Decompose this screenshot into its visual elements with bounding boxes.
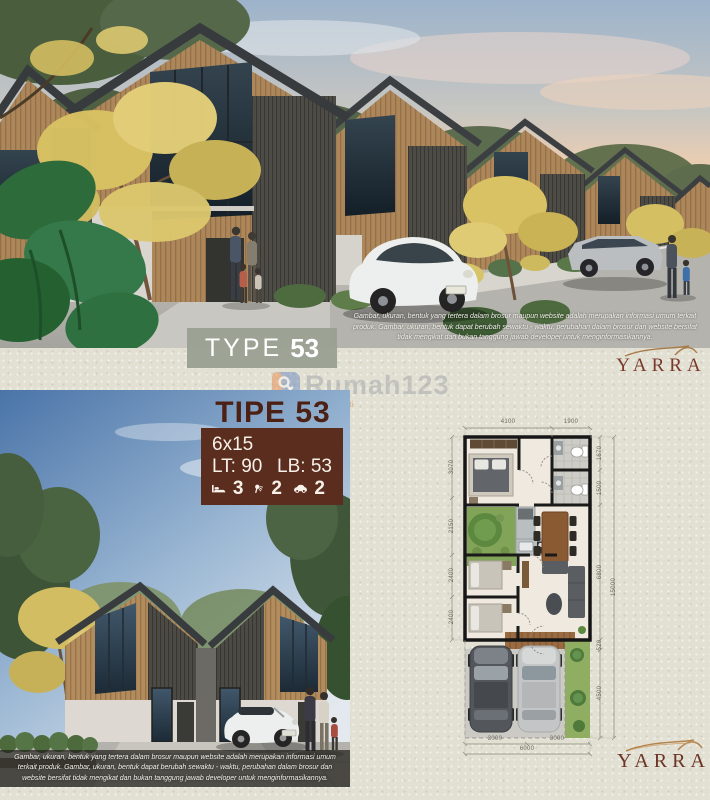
type-badge-number: 53 (290, 333, 319, 364)
bathroom-count: 2 (271, 479, 282, 498)
lt-label: LT: (212, 457, 236, 476)
tipe-53-title: TIPE 53 (198, 396, 348, 430)
dim-right-5: 4500 (597, 676, 603, 710)
bottom-disclaimer-text: Gambar, ukuran, bentuk yang tertera dala… (8, 753, 342, 785)
sedan-car (563, 236, 667, 291)
spec-area-row: LT: 90 LB: 53 (212, 457, 332, 476)
tipe-title-prefix: TIPE (215, 396, 286, 429)
bottom-disclaimer-bar: Gambar, ukuran, bentuk yang tertera dala… (0, 750, 350, 787)
lb-label: LB: (277, 457, 306, 476)
type-53-badge: TYPE 53 (187, 328, 337, 368)
lb-value: 53 (311, 457, 332, 476)
dim-right-1: 1670 (597, 436, 603, 470)
spec-size-row: 6x15 (212, 435, 332, 454)
tipe-title-number: 53 (295, 396, 330, 429)
carport-count: 2 (314, 479, 325, 498)
car-silver (516, 646, 562, 732)
yarra-wordmark: YARRA (617, 750, 710, 773)
bedroom-count: 3 (233, 479, 244, 498)
top-hero-render (0, 0, 710, 348)
dim-bottom-1: 3000 (478, 736, 512, 742)
dim-right-3: 6800 (597, 555, 603, 589)
car-dark (468, 646, 514, 732)
spec-box: 6x15 LT: 90 LB: 53 3 2 (201, 428, 343, 505)
yarra-logo-bottom: YARRA (616, 737, 710, 773)
brochure-page: Gambar, ukuran, bentuk yang tertera dala… (0, 0, 710, 800)
house-gap-shadow (196, 648, 218, 742)
dim-left-4: 2400 (449, 600, 455, 634)
type-badge-prefix: TYPE (205, 334, 282, 363)
dim-right-total: 15000 (611, 570, 617, 604)
spec-amenities-row: 3 2 2 (212, 479, 332, 498)
yarra-wordmark: YARRA (616, 355, 705, 377)
top-hero-scene (0, 0, 710, 348)
dim-top-1: 4100 (491, 419, 525, 425)
dim-left-2: 2150 (449, 509, 455, 543)
dim-bottom-2: 3000 (540, 736, 574, 742)
yarra-logo-top: YARRA (615, 343, 707, 377)
dim-bottom-total: 6000 (510, 746, 544, 752)
floor-plan: 4100 1900 3070 2150 2400 2400 1670 1500 … (430, 408, 645, 768)
dim-right-4: 520 (597, 628, 603, 662)
car-icon (293, 481, 307, 496)
hero-disclaimer-text: Gambar, ukuran, bentuk yang tertera dala… (345, 312, 705, 344)
shower-icon (254, 480, 264, 498)
dim-left-1: 3070 (449, 450, 455, 484)
lt-value: 90 (241, 457, 262, 476)
dim-right-2: 1500 (597, 471, 603, 505)
inner-garden (467, 507, 516, 566)
dim-left-3: 2400 (449, 558, 455, 592)
lot-size: 6x15 (212, 435, 253, 454)
carport (465, 640, 590, 738)
bed-icon (212, 480, 226, 497)
dim-top-2: 1900 (554, 419, 588, 425)
